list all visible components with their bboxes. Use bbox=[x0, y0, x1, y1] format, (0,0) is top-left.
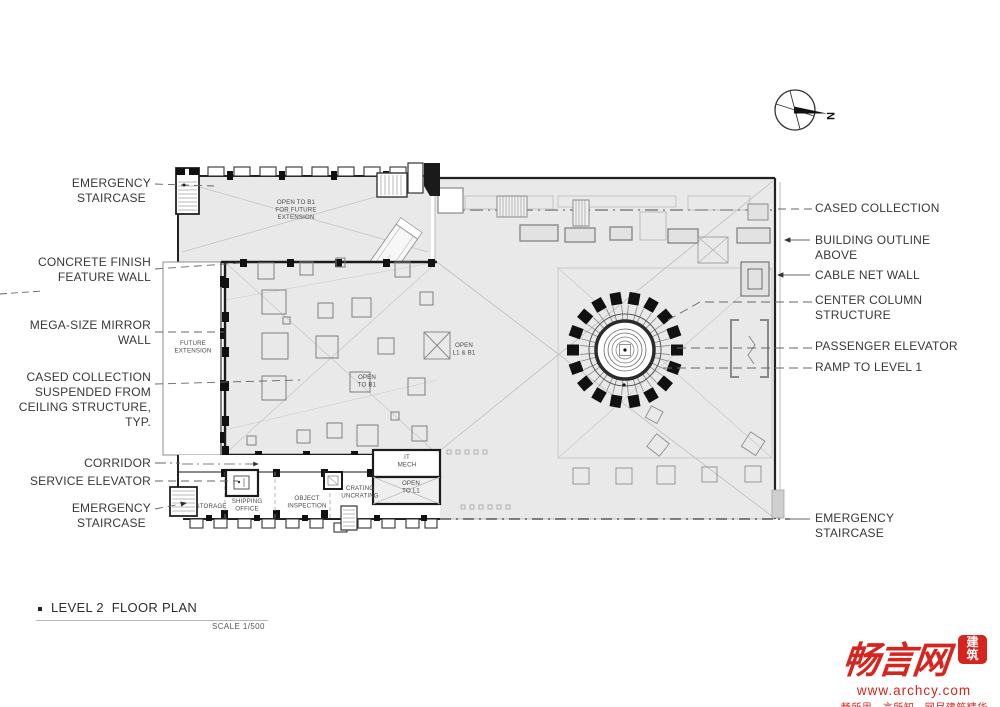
logo-website: www.archcy.com bbox=[841, 683, 987, 698]
label-mega-size-mirror-wall: MEGA-SIZE MIRROR WALL bbox=[30, 318, 151, 348]
label-passenger-elevator: PASSENGER ELEVATOR bbox=[815, 339, 958, 354]
left-gallery bbox=[221, 258, 450, 459]
logo-brand-text: 畅言网 bbox=[840, 630, 951, 684]
drawing-title: LEVEL 2 FLOOR PLAN bbox=[51, 600, 197, 615]
future-extension-strip bbox=[163, 262, 227, 455]
emergency-staircase-top-left bbox=[176, 168, 199, 214]
label-concrete-finish-feature-wall: CONCRETE FINISH FEATURE WALL bbox=[38, 255, 151, 285]
label-emergency-staircase-right: EMERGENCY STAIRCASE bbox=[815, 511, 894, 541]
logo-tagline: 畅所思 · 言所知 · 网尽建筑精华 bbox=[841, 699, 987, 707]
label-corridor: CORRIDOR bbox=[84, 456, 151, 471]
room-future-extension: FUTURE EXTENSION bbox=[175, 340, 212, 355]
stair-shaft-top bbox=[377, 173, 407, 197]
north-label: N bbox=[824, 112, 836, 120]
drawing-scale: SCALE 1/500 bbox=[212, 622, 265, 631]
small-shaft bbox=[324, 472, 342, 489]
north-arrow-icon bbox=[775, 90, 827, 130]
label-service-elevator: SERVICE ELEVATOR bbox=[30, 474, 151, 489]
room-storage: STORAGE bbox=[195, 503, 226, 510]
room-object-inspection: OBJECT INSPECTION bbox=[287, 495, 326, 510]
logo-seal: 建 筑 bbox=[958, 635, 987, 664]
title-block: LEVEL 2 FLOOR PLAN SCALE 1/500 bbox=[36, 600, 268, 621]
room-crating-uncrating: CRATING UNCRATING bbox=[341, 485, 379, 500]
room-open-to-l1: OPEN TO L1 bbox=[402, 480, 420, 495]
label-center-column-structure: CENTER COLUMN STRUCTURE bbox=[815, 293, 922, 323]
watermark-logo: 畅言网 建 筑 www.archcy.com 畅所思 · 言所知 · 网尽建筑精… bbox=[841, 633, 987, 707]
label-emergency-staircase-bottom: EMERGENCY STAIRCASE bbox=[72, 501, 151, 531]
room-open-to-b1: OPEN TO B1 bbox=[358, 374, 376, 389]
stair-bottom-middle bbox=[341, 506, 357, 530]
label-cased-collection: CASED COLLECTION bbox=[815, 201, 940, 216]
room-it-mech: IT MECH bbox=[398, 454, 417, 469]
title-bullet bbox=[38, 607, 42, 611]
service-elevator-fixture bbox=[226, 470, 258, 496]
room-open-to-b1-future: OPEN TO B1 FOR FUTURE EXTENSION bbox=[275, 199, 316, 221]
label-cable-net-wall: CABLE NET WALL bbox=[815, 268, 920, 283]
room-shipping-office: SHIPPING OFFICE bbox=[232, 498, 263, 513]
label-ramp-to-level-1: RAMP TO LEVEL 1 bbox=[815, 360, 922, 375]
exhibition-hall bbox=[430, 178, 790, 519]
label-building-outline-above: BUILDING OUTLINE ABOVE bbox=[815, 233, 930, 263]
emergency-staircase-bottom-left bbox=[170, 487, 197, 516]
stair-stub-right bbox=[772, 490, 784, 518]
label-emergency-staircase-top: EMERGENCY STAIRCASE bbox=[72, 176, 151, 206]
label-cased-collection-suspended: CASED COLLECTION SUSPENDED FROM CEILING … bbox=[19, 370, 151, 430]
room-open-l1-b1: OPEN L1 & B1 bbox=[453, 342, 476, 357]
floor-plan-sheet: EMERGENCY STAIRCASE CONCRETE FINISH FEAT… bbox=[0, 0, 1000, 707]
cable-net-wall-fixture bbox=[741, 262, 769, 296]
